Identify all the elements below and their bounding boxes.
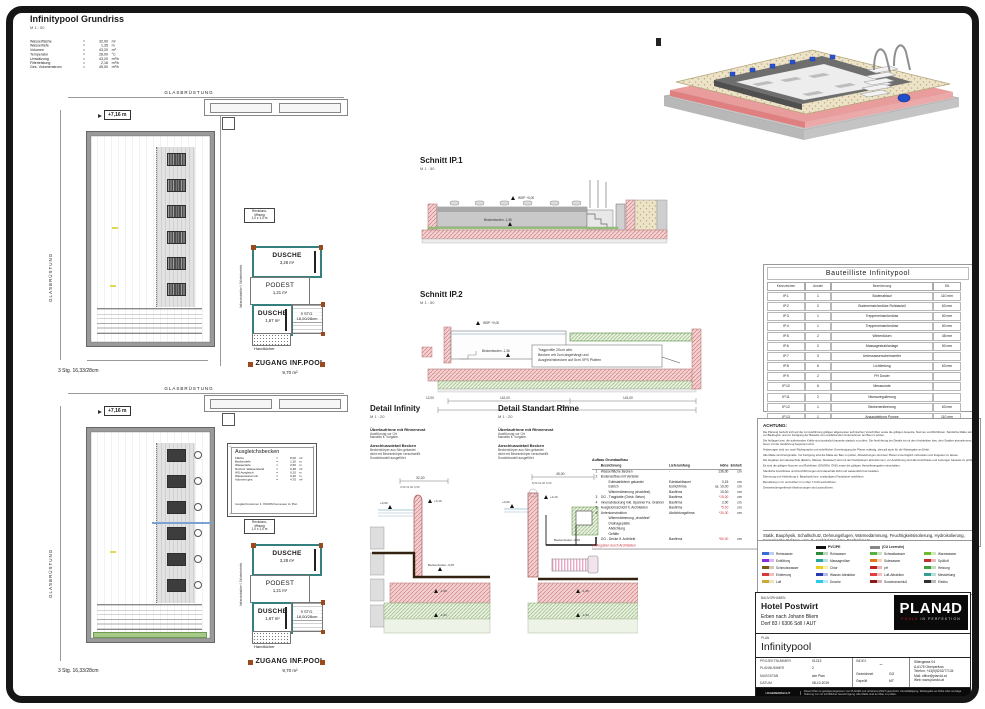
geprueft-label: Geprüft <box>856 679 867 683</box>
planter-rect <box>210 399 272 409</box>
top-edge-line <box>68 97 344 98</box>
room-name: PODEST <box>251 580 309 587</box>
schnitt-ip2: Schnitt IP.2 M 1 : 50 Tragprofile 20cm a… <box>420 290 710 422</box>
legend-label: Entlüftung <box>776 559 790 563</box>
ausgleichsbecken-specs: Fläche=8,00m²Beckentiefe=1,20mWassertief… <box>235 457 313 507</box>
room-name: DUSCHE <box>254 550 320 557</box>
legend-label: Reinwasser <box>776 552 793 556</box>
legend-label: Entleerung <box>776 573 791 577</box>
field-label: PROJEKTNUMMER <box>760 658 812 665</box>
legend-item: Luft <box>762 578 812 585</box>
room-area: 3,28 m² <box>254 260 320 265</box>
column-marker <box>321 600 326 605</box>
room-podest: PODEST 1,21 m² <box>250 575 310 603</box>
wsp-label: WSP +0,00 <box>518 196 534 200</box>
aufbau-table: Aufbau Grundaufbau BezeichnungLieferumfa… <box>592 458 762 603</box>
bauteil-row: IP.22Bodeneinströmdüse Rohbauteil63 mm <box>767 302 969 311</box>
valve-circle <box>194 555 202 563</box>
boden-flag: Beckenboden -0,05 <box>428 563 454 567</box>
planter-rect <box>279 399 341 409</box>
achtung-paragraph: Die Auflagen bzw. die auftretenden Kräft… <box>763 440 975 446</box>
achtung-paragraph: Änderungen sind nur nach Rücksprache und… <box>763 448 975 451</box>
revision-opening-note: Revisions- öffnung 1,0 x 1,0 m <box>244 519 275 534</box>
bauteil-row: IP.73Unterwasserscheinwerfer <box>767 352 969 361</box>
field-value: wie Plan <box>812 673 852 680</box>
achtung-title: ACHTUNG: <box>763 423 975 428</box>
aufbau-lieferumfang: Baufirma <box>669 537 708 542</box>
lamella-block <box>167 179 186 192</box>
boden-flag: Beckenboden -0,05 <box>554 538 580 542</box>
legend-label: Heizung <box>938 566 950 570</box>
field-value: 01213 <box>812 658 852 665</box>
legend-label: pH <box>884 566 888 570</box>
towel-shelf <box>252 333 291 346</box>
legend-swatch <box>870 580 882 583</box>
skimmer-box <box>222 413 235 426</box>
pipe-legend: ReinwasserEntlüftungSchmutzwasserEntleer… <box>757 540 979 595</box>
lamella-block <box>167 579 186 592</box>
legend-label: Dusche <box>830 580 841 584</box>
planter-band <box>204 99 348 116</box>
achtung-paragraph: Gewerkeübergreifende Abstimmungen sind a… <box>763 486 975 489</box>
pool-stairs <box>97 308 202 334</box>
legend-swatch <box>870 559 882 562</box>
logo-subtitle: POOLS IN PERFEKTION <box>894 617 968 621</box>
bauteil-row: IP.41Treppeneinströmdüse50 mm <box>767 322 969 331</box>
planter-rect <box>210 103 272 113</box>
lamella-block <box>167 527 186 540</box>
legend-item: Solewasser <box>870 557 920 564</box>
revision-line: 1,0 x 1,0 m <box>246 217 273 221</box>
legend-swatch <box>816 559 828 562</box>
field-grid: PROJEKTNUMMER 01213 PLANNUMMER 2 MASSSTA… <box>756 658 853 687</box>
right-dim-line <box>220 116 221 366</box>
detail-infinity-notes: Überlaufrinne mit Rinnenrost Ausführung … <box>370 427 496 462</box>
legend-item: Entlüftung <box>762 557 812 564</box>
boden-label: Beckenboden -1,36 <box>482 349 510 353</box>
achtung-paragraph: Alle Maße sind Fertigmaße. Vor Fertigung… <box>763 454 975 457</box>
glasbruestung-top-label: GLASBRÜSTUNG <box>124 386 254 391</box>
legend-label: Warmwasser <box>938 552 956 556</box>
legend-swatch <box>816 566 828 569</box>
overflow-green-strip <box>93 632 207 638</box>
aufbau-grid: BezeichnungLieferumfangHöheEinheit1Wasse… <box>592 464 762 543</box>
legend-label: Luft <box>776 580 781 584</box>
client-address: Dorf 83 / 6306 Söll / AUT <box>761 621 816 627</box>
bottom-dim-line <box>87 360 208 361</box>
pool-3d-render <box>652 14 967 146</box>
legend-item: Schwallwasser <box>870 550 920 557</box>
lamella-block <box>167 205 186 218</box>
geprueft-value: MT <box>889 679 894 683</box>
legend-item: pH <box>870 564 920 571</box>
field-value: 08-10.2019 <box>812 680 852 687</box>
titleblock-footer: URHEBERRECHT Dieser Plan ist geistiges E… <box>756 688 970 698</box>
l1-flag: -1,05 <box>440 589 447 593</box>
legend-label: Massagedüse <box>830 559 850 563</box>
legend-label: Schmutzwasser <box>776 566 799 570</box>
legend-item: Dusche <box>816 578 866 585</box>
legend-swatch <box>924 566 936 569</box>
index-column: INDEX – Gezeichnet GG Geprüft MT <box>853 658 910 687</box>
detail-rinne-scale: M 1 : 20 <box>498 414 640 419</box>
legend-swatch <box>924 559 936 562</box>
zugang-area: ZUGANG INF.POOL 9,70 m² <box>254 352 326 375</box>
aufbau-title: Aufbau Grundaufbau <box>592 458 762 462</box>
level-value: +7,16 m <box>108 408 127 414</box>
room-name: DUSCHE <box>254 252 320 259</box>
lamella-block <box>167 475 186 488</box>
legend-item: Messleitung <box>924 571 974 578</box>
legend-swatch <box>762 552 774 555</box>
level-value: +7,16 m <box>108 112 127 118</box>
left-dim-line <box>60 110 61 360</box>
top-edge-line <box>68 393 344 394</box>
footer-disclaimer: Dieser Plan ist geistiges Eigentum von P… <box>801 690 970 696</box>
valve-circle <box>194 581 202 589</box>
legend-swatch <box>870 566 882 569</box>
achtung-paragraph: Bemaßung in cm und Höhen in m über ± 0,0… <box>763 481 975 484</box>
logo-sub-red: POOLS <box>901 617 918 621</box>
col-header: DN <box>933 282 961 291</box>
stairs-line: 18,00/28cm <box>297 614 318 619</box>
boden-label: Beckenboden -1,36 <box>484 218 512 222</box>
level-flag-icon <box>98 410 102 414</box>
lamella-block <box>167 449 186 462</box>
detail-infinity-title: Detail Infinity <box>370 404 496 413</box>
column-marker <box>251 245 256 250</box>
room-podest: PODEST 1,21 m² <box>250 277 310 305</box>
legend-item: Wasser-Attraktion <box>816 571 866 578</box>
bauvorhaben-label: BAUVORHABEN <box>761 596 785 600</box>
pool-basin <box>87 132 214 346</box>
column-marker <box>320 362 325 367</box>
revision-opening-note: Revisions- öffnung 1,0 x 1,0 m <box>244 208 275 223</box>
handtuecher-label: Handtücher <box>254 644 275 649</box>
logo-sub-rest: IN PERFEKTION <box>918 617 960 621</box>
titleblock-plan: PLAN Infinitypool <box>756 634 970 658</box>
column-marker <box>321 630 326 635</box>
valve-circle <box>194 451 202 459</box>
titleblock: BAUVORHABEN Hotel Postwirt Erben nach Jo… <box>755 592 971 698</box>
bauteil-row: IP.11Bodenablauf110 mm <box>767 292 969 301</box>
glasbruestung-left-label: GLASBRÜSTUNG <box>48 182 53 302</box>
bauteil-row: IP.92PH Dosier <box>767 372 969 381</box>
field-value: 2 <box>812 665 852 672</box>
lamella-zone <box>156 147 195 307</box>
legend-label: Schwallwasser <box>884 552 905 556</box>
wsp-flag: +0,00 <box>380 501 388 505</box>
detail-rinne-notes: Überlaufrinne mit Rinnenrost Ausführung … <box>498 427 640 462</box>
field-label: MASSSTAB <box>760 673 812 680</box>
col-header: Bezeichnung <box>831 282 933 291</box>
legend-swatch <box>924 573 936 576</box>
note-head: Überlaufrinne mit Rinnenrost <box>498 427 640 432</box>
col-header: Anzahl <box>805 282 831 291</box>
column-marker <box>320 660 325 665</box>
dim-top: 32,00 <box>416 476 425 480</box>
lamella-block <box>167 553 186 566</box>
spec-row: Ges. Volumenstrom=45,00m³/h <box>30 66 140 70</box>
schnitt2-title: Schnitt IP.2 <box>420 290 710 299</box>
stairs-3stg-label: 3 Stg. 16,33/28cm <box>58 668 99 674</box>
wsp-flag: +0,00 <box>502 500 510 504</box>
aufbau-footnote: (*) Angaben durch Architekten <box>592 544 762 549</box>
field-label: DATUM <box>760 680 812 687</box>
achtung-notes: ACHTUNG: Die Planung bezieht sich auf di… <box>757 418 981 547</box>
stairs-9stg: 9 STG. 18,00/28cm <box>291 304 323 334</box>
legend-label: Rohwasser <box>830 552 846 556</box>
lamella-block <box>167 153 186 166</box>
room-dusche-1: DUSCHE 3,28 m² <box>252 544 322 576</box>
legend-item: Schmutzwasser <box>762 564 812 571</box>
room-area: 3,28 m² <box>254 558 320 563</box>
legend-item: Heizung <box>924 564 974 571</box>
note-line: bauseits lt. Vorgabe <box>498 436 640 440</box>
room-area: 1,21 m² <box>251 588 309 593</box>
valve-circle <box>194 477 202 485</box>
note-line: Sonderbauteil ausgeführt <box>370 457 496 461</box>
gezeichnet-value: GG <box>889 672 894 676</box>
address-line: Web: www.plan4d.at <box>914 678 970 683</box>
legend-item: Warmwasser <box>924 550 974 557</box>
zugang-size: 9,70 m² <box>254 668 326 673</box>
glasbruestung-top-label: GLASBRÜSTUNG <box>124 90 254 95</box>
titleblock-fields: PROJEKTNUMMER 01213 PLANNUMMER 2 MASSSTA… <box>756 658 970 688</box>
room-area: 1,21 m² <box>251 290 309 295</box>
legend-item: Spülluft <box>924 557 974 564</box>
planter-rect <box>279 103 341 113</box>
legend-item: Massagedüse <box>816 557 866 564</box>
column-marker <box>319 543 324 548</box>
ausgleichsbecken-title: Ausgleichsbecken <box>235 449 279 455</box>
l1-flag: -1,05 <box>582 589 589 593</box>
room-dusche-2: DUSCHE 1,67 m² <box>252 304 293 336</box>
shower-wall <box>285 309 288 331</box>
field-label: PLANNUMMER <box>760 665 812 672</box>
aufbau-hoehe: *80,00 <box>708 537 729 542</box>
valve-circle <box>194 503 202 511</box>
grundriss-scale: M 1 : 50 <box>30 25 124 30</box>
floorplan-lower: GLASBRÜSTUNG +7,16 m GLASBRÜSTUNG <box>58 386 350 686</box>
shower-wall <box>314 549 317 571</box>
level-marker: +7,16 m <box>104 406 131 416</box>
legend-item: Reinwasser <box>762 550 812 557</box>
achtung-paragraph: Die Planung bezieht sich auf die zur Aus… <box>763 431 975 437</box>
legend-column: PVC/PERohwasserMassagedüseChlorWasser-At… <box>816 544 866 592</box>
aufbau-name: OG - Decke lt. Architekt <box>601 537 669 542</box>
spec-row: Volumen ges.=4,75m³ <box>235 479 313 483</box>
dim-top: 45,00 <box>556 472 565 476</box>
left-dim-line <box>60 406 61 661</box>
aufbau-einheit: cm <box>728 537 741 542</box>
shower-wall <box>285 607 288 629</box>
stairs-9stg: 9 STG. 18,00/28cm <box>291 602 323 632</box>
column-marker <box>321 332 326 337</box>
legend-column: (CU Leerrohr)SchwallwasserSolewasserpHLu… <box>870 544 920 592</box>
legend-swatch <box>870 573 882 576</box>
zugang-name: ZUGANG INF.POOL <box>255 360 324 367</box>
legend-item: Luft-Attraktion <box>870 571 920 578</box>
ausgleichsbecken-footnote: Ausgleichsvolumen lt. ÖNORM bemessen im … <box>235 502 315 506</box>
pool-stairs <box>97 604 202 630</box>
office-address: Sittergasse 04 A-6175 Oberperfuss Telefo… <box>910 658 970 687</box>
plan4d-logo: PLAN4D POOLS IN PERFEKTION <box>894 595 968 630</box>
zugang-area: ZUGANG INF.POOL 9,70 m² <box>254 650 326 673</box>
bauteil-row: IP.86Lichtleitung63 mm <box>767 362 969 371</box>
pool-basin <box>87 428 214 642</box>
plan-label: PLAN <box>761 636 769 640</box>
marker-yellow <box>110 285 116 287</box>
infrared-heater-label: Infrarotstrahler f. Winterbetrieb <box>239 248 243 308</box>
schnitt2-drawing: Tragprofile 20cm abh. Becken mit 2cm abg… <box>420 307 710 417</box>
zugang-size: 9,70 m² <box>254 370 326 375</box>
annotation-line-2: Becken mit 2cm abgehängt und <box>538 353 589 357</box>
column-marker <box>321 302 326 307</box>
legend-swatch <box>816 580 828 583</box>
infrared-heater-label: Infrarotstrahler f. Winterbetrieb <box>239 546 243 606</box>
bauteilliste: Bauteilliste Infinitypool Kennzeichen An… <box>763 264 973 412</box>
grundriss-header: Infinitypool Grundriss M 1 : 50 <box>30 14 124 30</box>
col-header: Kennzeichen <box>767 282 805 291</box>
towel-shelf <box>252 631 291 644</box>
room-dusche-1: DUSCHE 3,28 m² <box>252 246 322 278</box>
dim4: 12,00 <box>426 396 434 400</box>
legend-item: Rohwasser <box>816 550 866 557</box>
legend-swatch <box>924 580 936 583</box>
dim-sub: 8,00 21,00 6,00 <box>532 481 552 485</box>
niveau-flag: +0,10 <box>550 495 558 499</box>
stairs-3stg-label: 3 Stg. 16,33/28cm <box>58 368 99 374</box>
l2-flag: -1,60 <box>440 613 447 617</box>
achtung-paragraph: Es sind die gültigen Normen und Richtlin… <box>763 465 975 468</box>
room-dusche-2: DUSCHE 1,67 m² <box>252 602 293 634</box>
shower-wall <box>314 251 317 273</box>
handtuecher-label: Handtücher <box>254 346 275 351</box>
stairs-line: 18,00/28cm <box>297 316 318 321</box>
detail-infinity-drawing: 32,00 4,50 21,00 6,50 +0,00 +0,10 Becken… <box>370 467 496 647</box>
grundriss-title: Infinitypool Grundriss <box>30 14 124 24</box>
pipe-blue-line <box>152 522 212 524</box>
l2-flag: -1,60 <box>582 613 589 617</box>
legend-swatch <box>762 566 774 569</box>
legend-swatch <box>762 573 774 576</box>
legend-swatch <box>816 573 828 576</box>
corner-mark: + <box>313 444 315 449</box>
dim2: 143,00 <box>623 396 633 400</box>
column-marker <box>251 543 256 548</box>
wsp-label: WSP +0,00 <box>483 321 499 325</box>
logo-text: PLAN4D <box>894 600 968 617</box>
plan-name: Infinitypool <box>761 641 811 653</box>
bauteilliste-rows: IP.11Bodenablauf110 mmIP.22Bodeneinström… <box>767 292 969 422</box>
achtung-paragraph: Die Angaben der Haustechnik (Elektro, Wa… <box>763 459 975 462</box>
legend-swatch <box>924 552 936 555</box>
zugang-name: ZUGANG INF.POOL <box>255 658 324 665</box>
lamella-block <box>167 501 186 514</box>
legend-item: Elektro <box>924 578 974 585</box>
bauteil-row: IP.31Treppeneinströmdüse50 mm <box>767 312 969 321</box>
annotation-line-1: Tragprofile 20cm abh. <box>538 348 573 352</box>
detail-infinity: Detail Infinity M 1 : 20 Überlaufrinne m… <box>370 404 496 652</box>
stairs-label: 9 STG. 18,00/28cm <box>293 610 321 619</box>
gezeichnet-label: Gezeichnet <box>856 672 873 676</box>
note-line: bauseits lt. Vorgabe <box>370 436 496 440</box>
legend-label: Wasser-Attraktion <box>830 573 855 577</box>
footer-left-label: URHEBERRECHT <box>756 691 801 695</box>
bauteil-row: IP.121Beckenentleerung63 mm <box>767 403 969 412</box>
legend-column: ReinwasserEntlüftungSchmutzwasserEntleer… <box>762 544 812 592</box>
stairs-label: 9 STG. 18,00/28cm <box>293 312 321 321</box>
glasbruestung-left-label: GLASBRÜSTUNG <box>48 478 53 598</box>
marker-yellow <box>110 551 116 553</box>
bauteilliste-title: Bauteilliste Infinitypool <box>767 267 969 280</box>
schnitt-ip1: Schnitt IP.1 M 1 : 50 WSP +0,00 <box>420 156 670 251</box>
legend-swatch <box>870 552 882 555</box>
niveau-flag: +0,10 <box>434 499 442 503</box>
skimmer-box <box>222 117 235 130</box>
schnitt1-scale: M 1 : 50 <box>420 166 670 171</box>
annotation-line-3: Ausgleichsbecken auf 5cm XPS Platten <box>538 358 601 362</box>
bauteil-row: IP.112Niveauregulierung <box>767 393 969 402</box>
achtung-paragraph: Dämmung und Abdichtung lt. Bauphysik bzw… <box>763 476 975 479</box>
corner-mark: + <box>313 511 315 516</box>
titleblock-project: BAUVORHABEN Hotel Postwirt Erben nach Jo… <box>756 593 970 634</box>
legend-label: Elektro <box>938 580 948 584</box>
level-marker: +7,16 m <box>104 110 131 120</box>
column-marker <box>248 660 253 665</box>
legend-label: Sonderanschluß <box>884 580 907 584</box>
dim-sub: 4,50 21,00 6,50 <box>400 485 420 489</box>
legend-item: Chlor <box>816 564 866 571</box>
planter-band <box>204 395 348 412</box>
legend-item: Entleerung <box>762 571 812 578</box>
legend-label: Chlor <box>830 566 838 570</box>
detail-infinity-scale: M 1 : 20 <box>370 414 496 419</box>
bauteil-row: IP.62Massagestrahlanlage50 mm <box>767 342 969 351</box>
client-line2: Erben nach Johann Bliem <box>761 614 818 620</box>
marker-yellow <box>112 227 118 229</box>
level-flag-icon <box>98 114 102 118</box>
lamella-block <box>167 257 186 270</box>
grundriss-specs: Wasserfläche=32,00m²Wassertiefe=1,35mVol… <box>30 40 140 90</box>
legend-label: Spülluft <box>938 559 949 563</box>
bauteil-row: IP.106Messsonde <box>767 382 969 391</box>
column-marker <box>319 245 324 250</box>
room-name: PODEST <box>251 282 309 289</box>
column-marker <box>248 362 253 367</box>
corner-mark: + <box>229 511 231 516</box>
client-name: Hotel Postwirt <box>761 601 818 611</box>
lamella-block <box>167 283 186 296</box>
drawing-sheet: Infinitypool Grundriss M 1 : 50 Wasserfl… <box>0 0 985 709</box>
detail-rinne-title: Detail Standart Rinne <box>498 404 640 413</box>
legend-swatch <box>762 580 774 583</box>
legend-label: Messleitung <box>938 573 955 577</box>
ausgleichsbecken-box: + + + + Ausgleichsbecken Fläche=8,00m²Be… <box>227 443 317 517</box>
lamella-block <box>167 231 186 244</box>
index-value: – <box>853 662 909 668</box>
legend-swatch <box>816 552 828 555</box>
legend-item: Sonderanschluß <box>870 578 920 585</box>
schnitt1-drawing: WSP +0,00 Beckenboden -1,36 <box>420 174 670 246</box>
floorplan-upper: GLASBRÜSTUNG +7,16 m GLASBRÜSTUNG <box>58 90 350 384</box>
legend-label: Luft-Attraktion <box>884 573 904 577</box>
schnitt1-title: Schnitt IP.1 <box>420 156 670 165</box>
legend-label: Solewasser <box>884 559 900 563</box>
dim1: 142,00 <box>500 396 510 400</box>
legend-column: WarmwasserSpülluftHeizungMessleitungElek… <box>924 544 974 592</box>
